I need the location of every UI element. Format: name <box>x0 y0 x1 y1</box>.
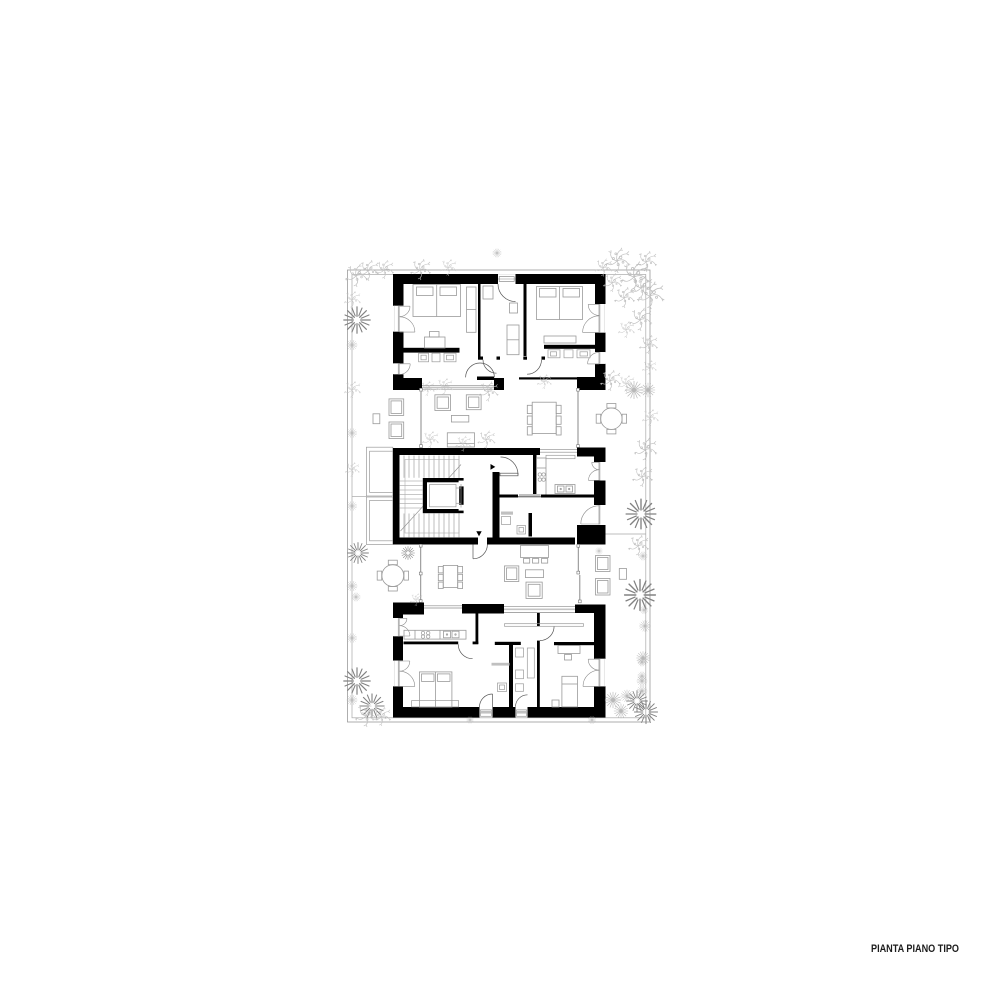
svg-text:PIANTA PIANO TIPO: PIANTA PIANO TIPO <box>871 943 959 955</box>
